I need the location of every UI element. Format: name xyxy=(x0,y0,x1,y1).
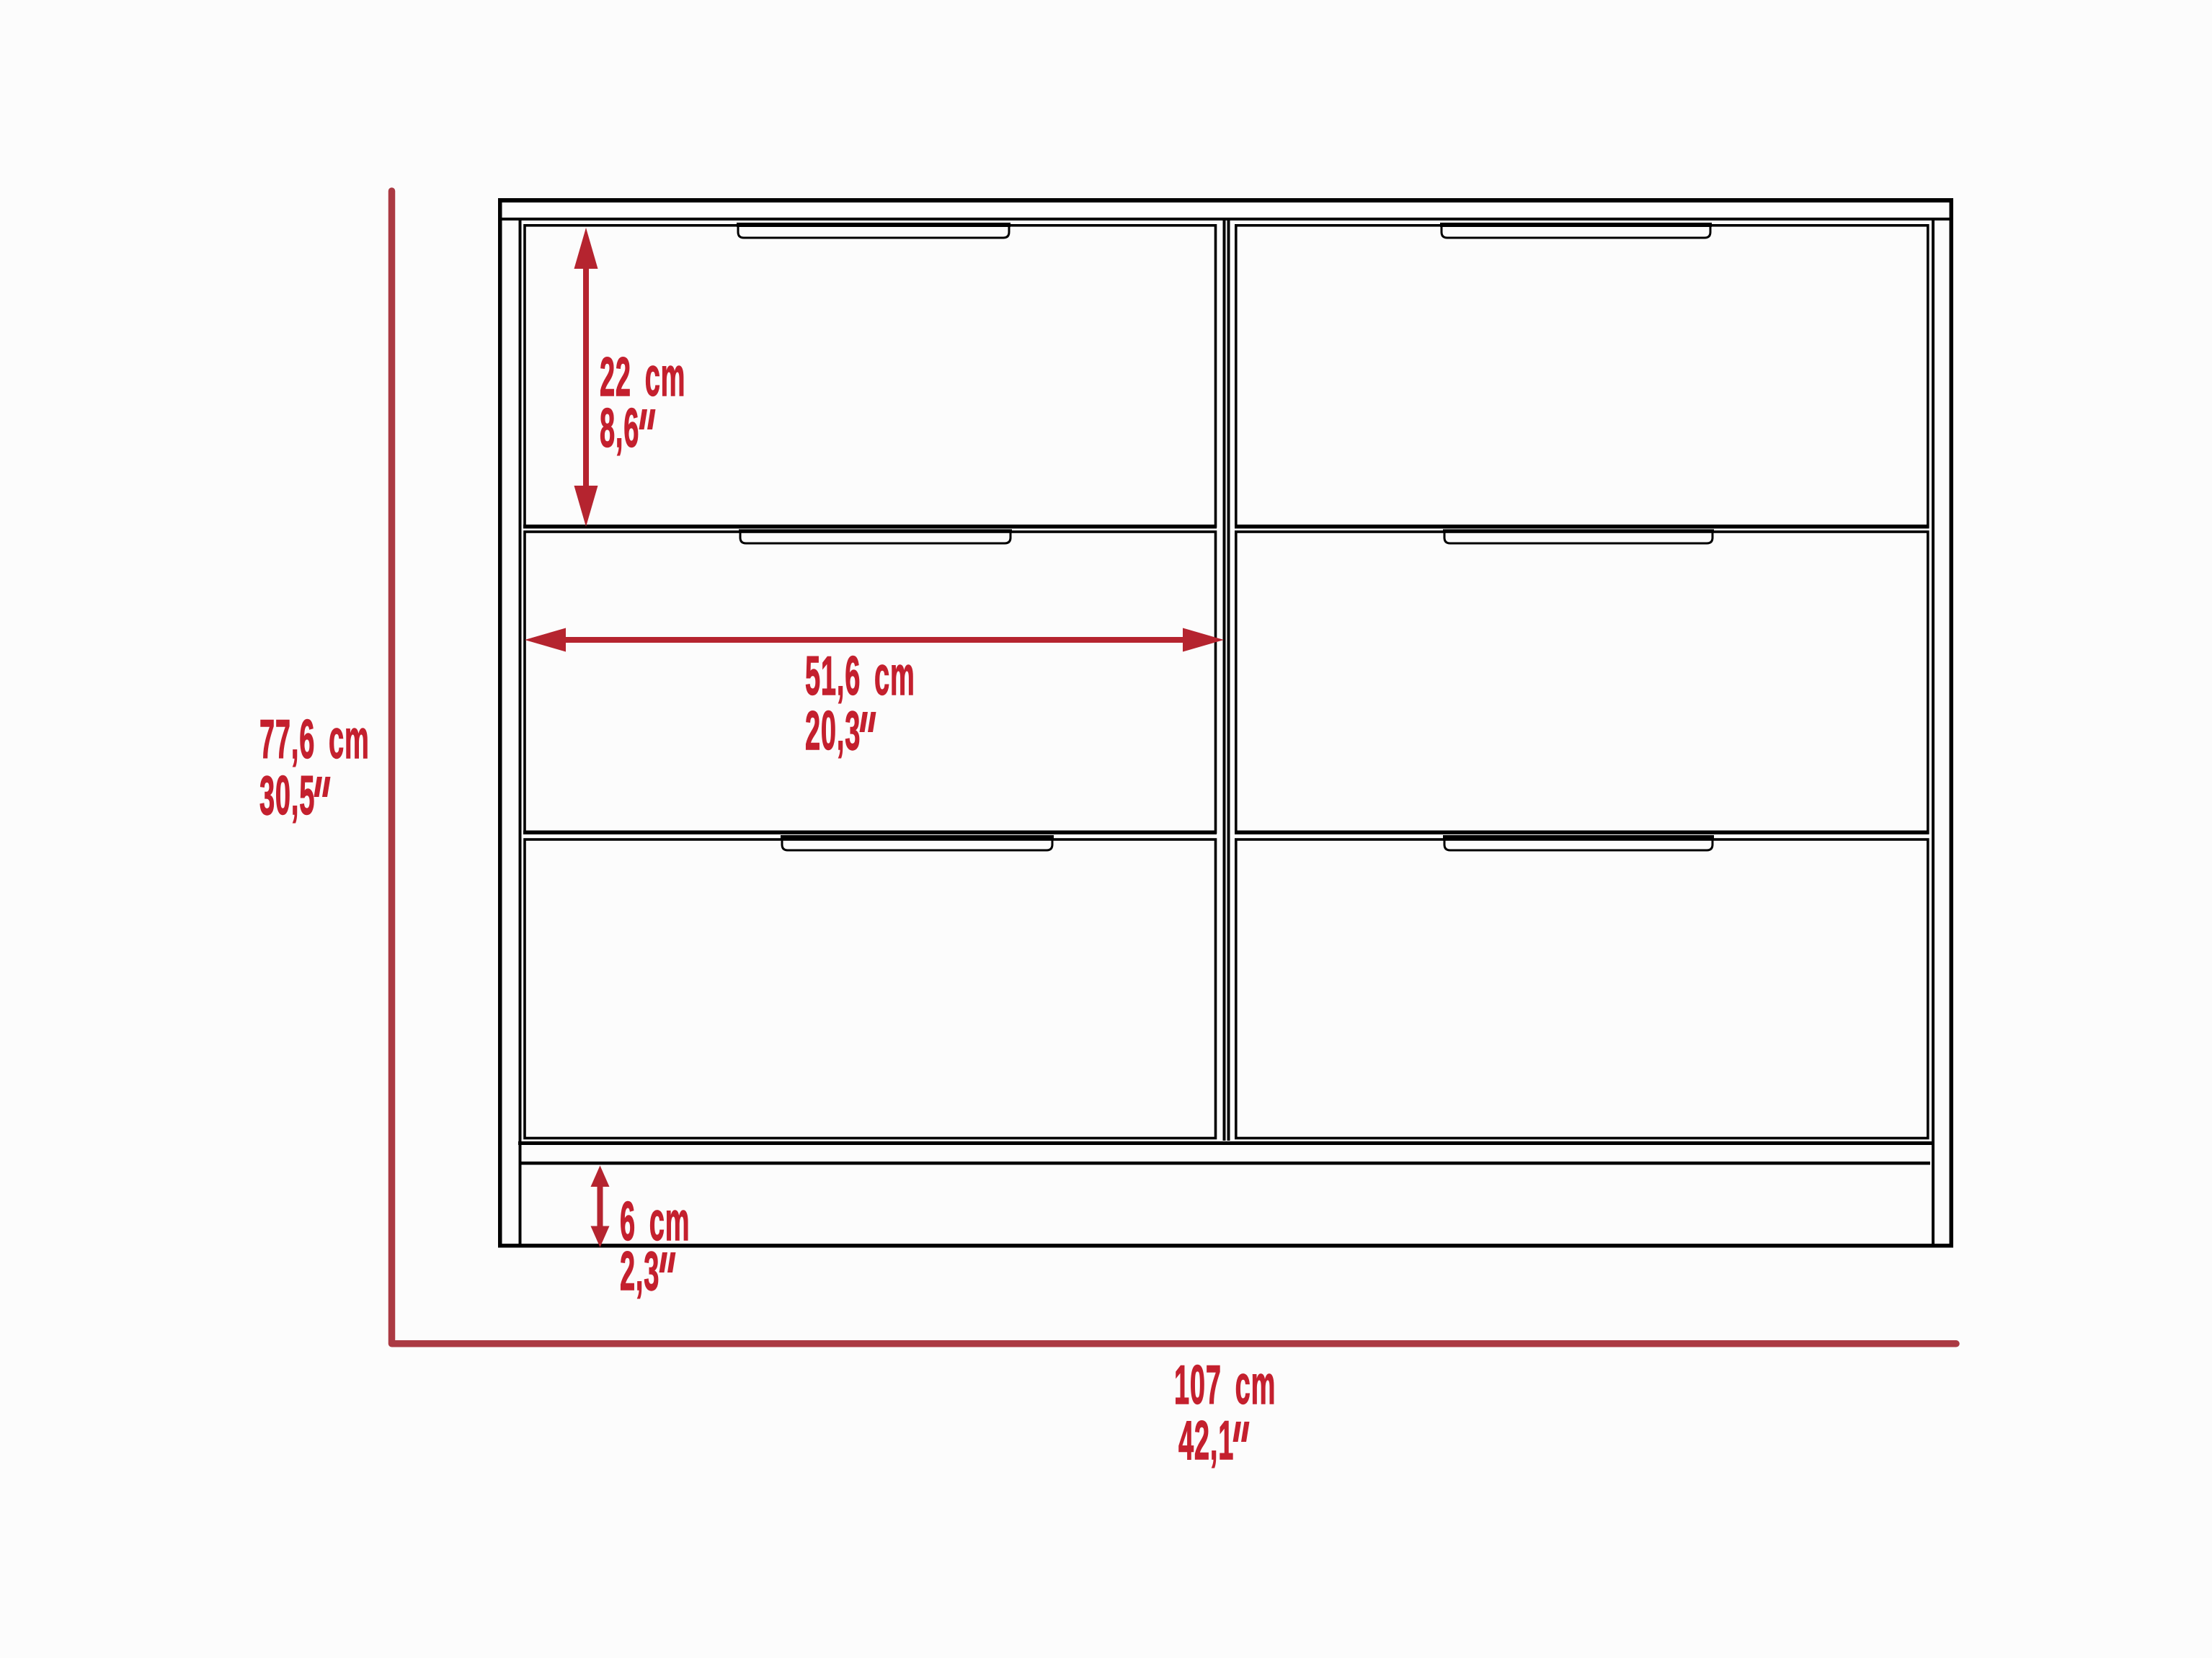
svg-text:51,6 cm: 51,6 cm xyxy=(805,646,915,707)
svg-text:77,6 cm: 77,6 cm xyxy=(259,709,370,770)
svg-text:30,5: 30,5 xyxy=(259,765,315,826)
svg-text:8,6: 8,6 xyxy=(600,398,639,459)
svg-text:107 cm: 107 cm xyxy=(1174,1355,1276,1416)
svg-text:42,1: 42,1 xyxy=(1178,1410,1234,1471)
svg-text:2,3: 2,3 xyxy=(620,1241,659,1302)
svg-text:20,3: 20,3 xyxy=(805,700,861,762)
